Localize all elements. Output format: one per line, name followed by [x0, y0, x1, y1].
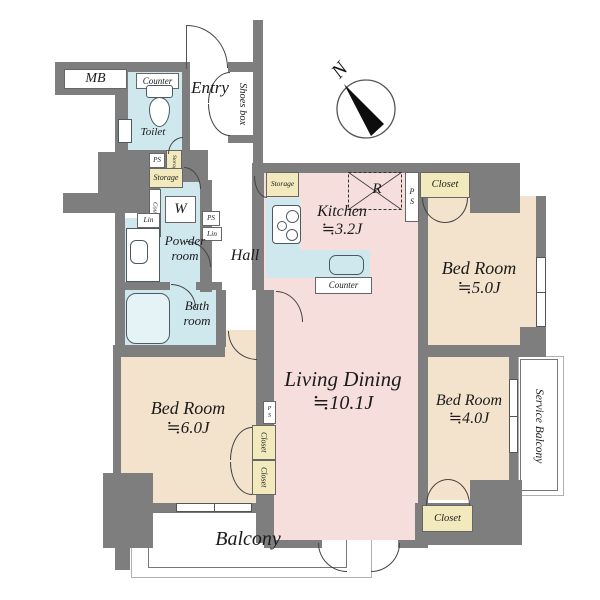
- pipe-space-living: PS: [263, 401, 276, 424]
- wall-segment: [196, 282, 222, 290]
- kitchen-name: Kitchen: [298, 203, 386, 221]
- storage-kitchen: Storage: [266, 172, 299, 197]
- kitchen-size: ≒3.2J: [298, 221, 386, 239]
- balcony-text: Balcony: [215, 528, 281, 550]
- kitchen-label: Kitchen ≒3.2J: [298, 203, 386, 239]
- shoes-box-text: Shoes box: [237, 83, 248, 125]
- wall-segment: [127, 62, 189, 72]
- bath-line1: Bath: [166, 299, 228, 314]
- living-dining-size: ≒10.1J: [278, 392, 408, 414]
- window: [536, 257, 546, 327]
- balcony-label: Balcony: [150, 528, 346, 550]
- storage-hall: Storage: [149, 168, 183, 188]
- ps-label: PS: [408, 187, 417, 207]
- wall-segment: [121, 282, 170, 290]
- door-arc: [187, 25, 228, 68]
- north-compass: N: [328, 50, 400, 145]
- wall-segment: [113, 345, 225, 357]
- kitchen-sink: [329, 255, 364, 275]
- north-arrow: [344, 84, 384, 136]
- wall-segment: [418, 173, 428, 543]
- wall-segment: [228, 62, 255, 72]
- living-dining-label: Living Dining ≒10.1J: [278, 368, 408, 414]
- wall-segment: [470, 173, 520, 213]
- shoes-box-label: Shoes box: [232, 74, 253, 134]
- toilet-label: Toilet: [126, 126, 180, 138]
- closet-label: Closet: [432, 179, 459, 191]
- pipe-space-kitchen: PS: [405, 172, 419, 222]
- hall-text: Hall: [231, 247, 259, 264]
- counter-label: Counter: [329, 280, 359, 290]
- bedroom-west-label: Bed Room ≒6.0J: [126, 398, 250, 437]
- pipe-space-powder: PS: [202, 211, 220, 226]
- bath-room-label: Bath room: [166, 299, 228, 328]
- closet-label: Closet: [434, 513, 461, 525]
- ps-label: PS: [153, 157, 161, 165]
- lin-label: Lin: [143, 216, 153, 224]
- service-balcony-label: Service Balcony: [527, 372, 551, 480]
- closet-bedroom-north: Closet: [420, 172, 470, 198]
- closet-bedroom-west-lower: Closet: [252, 460, 276, 495]
- wall-segment: [228, 135, 255, 143]
- living-dining-name: Living Dining: [278, 368, 408, 392]
- north-label: N: [328, 57, 354, 84]
- closet-label: Closet: [260, 432, 269, 452]
- stove: [272, 205, 301, 244]
- powder-line2: room: [148, 249, 222, 264]
- vanity-bowl: [130, 240, 148, 264]
- r-label: R: [372, 181, 381, 198]
- powder-room-label: Powder room: [148, 234, 222, 263]
- lin-west: Lin: [137, 213, 160, 228]
- refrigerator-label: R: [362, 176, 392, 202]
- bedroom-east-floor: [428, 357, 513, 500]
- closet-bedroom-west-upper: Closet: [252, 425, 276, 460]
- service-balcony-text: Service Balcony: [533, 389, 545, 463]
- washing-machine: W: [165, 196, 196, 223]
- entry-label: Entry: [184, 78, 236, 97]
- wall-segment: [63, 193, 98, 213]
- powder-line1: Powder: [148, 234, 222, 249]
- bedroom-east-size: ≒4.0J: [423, 410, 515, 428]
- closet-bedroom-east: Closet: [422, 505, 473, 532]
- bedroom-east-label: Bed Room ≒4.0J: [423, 392, 515, 428]
- wall-segment: [253, 20, 263, 165]
- bedroom-north-size: ≒5.0J: [424, 278, 534, 297]
- wall-segment: [115, 548, 130, 570]
- bath-line2: room: [166, 314, 228, 329]
- bedroom-west-size: ≒6.0J: [126, 418, 250, 437]
- door-arc: [208, 104, 230, 136]
- storage-label: Storage: [154, 174, 179, 183]
- door-arc: [371, 543, 400, 572]
- window: [176, 503, 252, 512]
- wall-segment: [509, 357, 518, 379]
- entry-text: Entry: [191, 78, 229, 97]
- wall-segment: [536, 196, 546, 257]
- bedroom-east-name: Bed Room: [423, 392, 515, 410]
- bedroom-north-label: Bed Room ≒5.0J: [424, 258, 534, 297]
- wall-segment: [420, 345, 546, 357]
- ps-label: PS: [267, 406, 273, 420]
- closet-label: Closet: [260, 467, 269, 487]
- toilet-text: Toilet: [141, 126, 166, 138]
- hall-label: Hall: [220, 247, 270, 265]
- kitchen-counter: Counter: [315, 277, 372, 294]
- floor-plan: MB Counter PS Storage Storage Counter Li…: [0, 0, 600, 600]
- washer-label: W: [174, 201, 187, 218]
- wall-segment: [103, 473, 153, 548]
- storage-label: Storage: [271, 180, 294, 188]
- meter-box: MB: [64, 69, 127, 89]
- bedroom-west-name: Bed Room: [126, 398, 250, 418]
- bedroom-north-name: Bed Room: [424, 258, 534, 278]
- pipe-space-entry: PS: [149, 153, 165, 168]
- bathtub: [126, 293, 170, 344]
- ps-label: PS: [207, 215, 215, 223]
- mb-label: MB: [85, 71, 105, 87]
